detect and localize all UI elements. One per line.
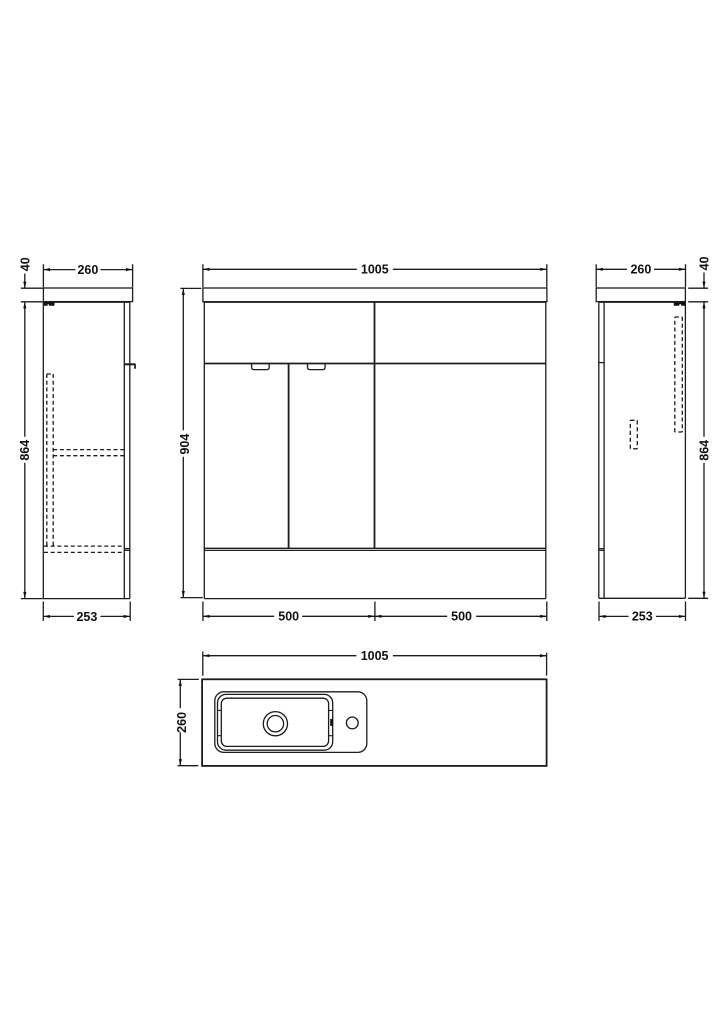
svg-text:260: 260 bbox=[175, 712, 189, 733]
svg-text:864: 864 bbox=[698, 440, 712, 461]
svg-text:253: 253 bbox=[76, 610, 97, 624]
svg-text:500: 500 bbox=[451, 610, 472, 624]
svg-text:40: 40 bbox=[697, 256, 711, 270]
svg-text:40: 40 bbox=[18, 257, 32, 271]
svg-text:904: 904 bbox=[178, 434, 192, 455]
svg-text:260: 260 bbox=[630, 263, 651, 277]
svg-text:1005: 1005 bbox=[361, 649, 389, 663]
svg-text:253: 253 bbox=[632, 610, 653, 624]
svg-text:260: 260 bbox=[77, 263, 98, 277]
svg-text:864: 864 bbox=[18, 440, 32, 461]
svg-text:500: 500 bbox=[278, 610, 299, 624]
svg-text:1005: 1005 bbox=[361, 263, 389, 277]
